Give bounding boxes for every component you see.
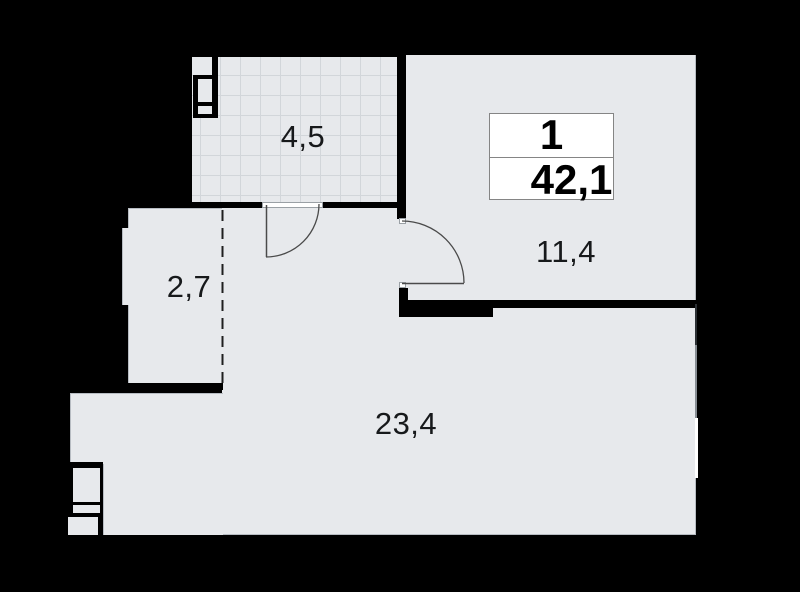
living-kitchen-area-label: 23,4: [346, 404, 466, 444]
apartment-rooms-count: 1: [490, 114, 613, 158]
hall-area-label: 2,7: [129, 267, 249, 307]
bedroom-area-label: 11,4: [506, 232, 626, 272]
plan-linework: [0, 0, 800, 592]
bedroom-door-arc: [402, 221, 464, 283]
bathroom-area-label: 4,5: [243, 117, 363, 157]
apartment-total-area: 42,1: [510, 158, 633, 201]
floor-plan: 1 42,1 4,5 2,7 11,4 23,4: [0, 0, 800, 592]
apartment-info-box: 1 42,1: [489, 113, 614, 200]
bathroom-door-arc: [266, 204, 319, 257]
